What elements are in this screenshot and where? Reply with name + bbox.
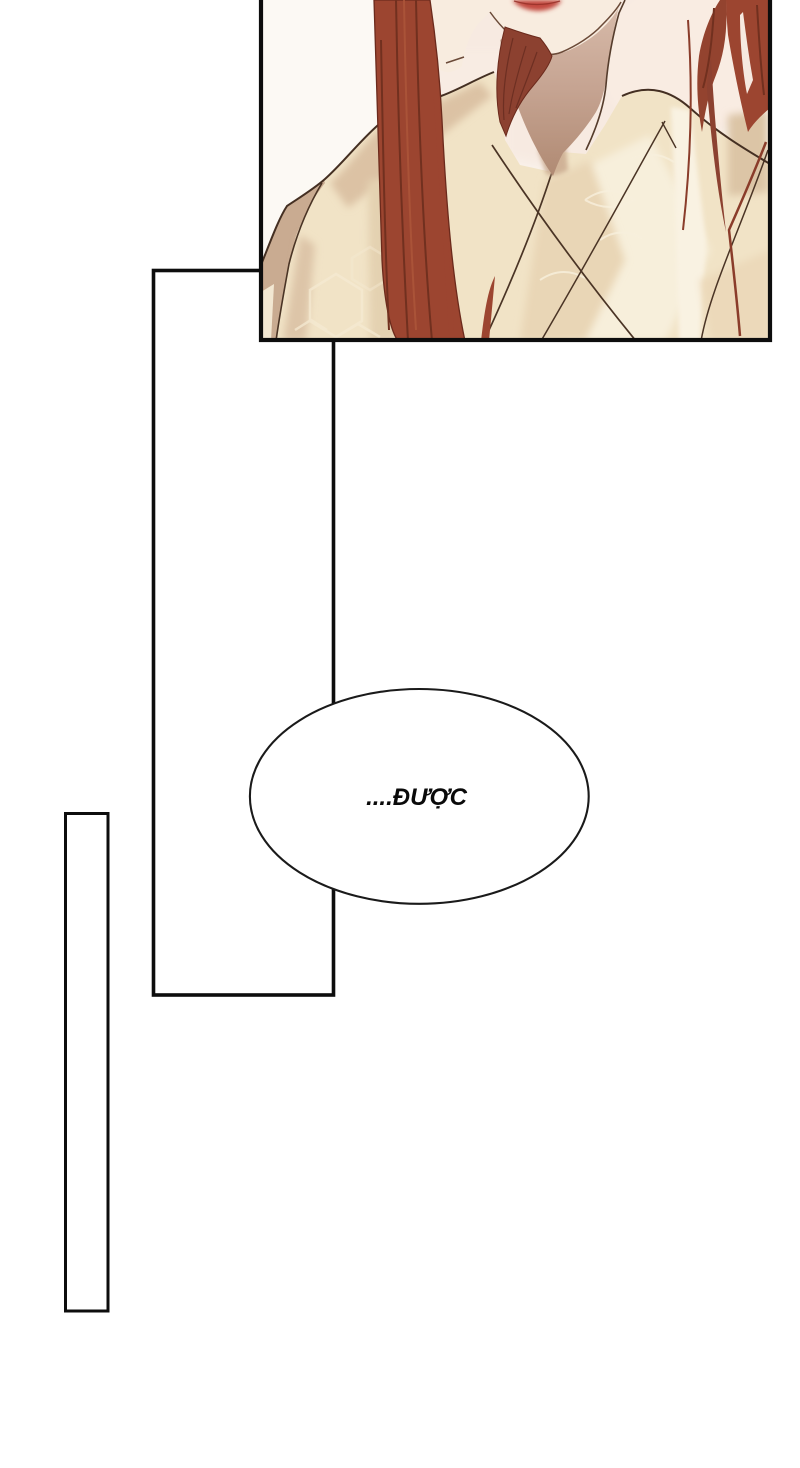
svg-text:....ĐƯỢC: ....ĐƯỢC: [366, 784, 468, 811]
